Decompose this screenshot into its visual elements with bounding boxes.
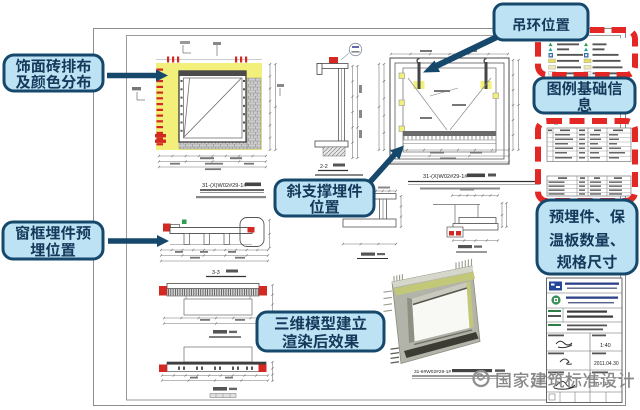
svg-text:31-(X)W02#29-1#: 31-(X)W02#29-1# [423,174,468,180]
svg-text:2011.04.30: 2011.04.30 [594,361,619,367]
svg-text:1:40: 1:40 [600,343,611,349]
svg-text:3-3: 3-3 [212,270,220,276]
svg-text:2-2: 2-2 [320,164,328,170]
svg-text:31-6#W02#29-1#: 31-6#W02#29-1# [414,369,451,375]
svg-text:31-(X)W02#29-1#: 31-(X)W02#29-1# [202,183,247,189]
